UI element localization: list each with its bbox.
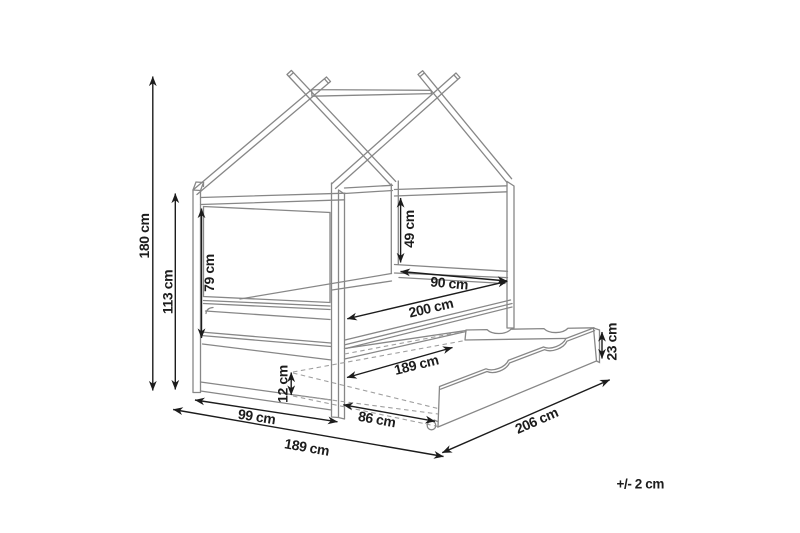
svg-text:86 cm: 86 cm <box>357 408 397 430</box>
svg-text:90 cm: 90 cm <box>430 273 469 292</box>
svg-text:49 cm: 49 cm <box>401 210 417 248</box>
svg-text:23 cm: 23 cm <box>604 323 620 361</box>
svg-text:189 cm: 189 cm <box>392 351 440 377</box>
svg-text:180 cm: 180 cm <box>136 213 152 258</box>
svg-text:113 cm: 113 cm <box>160 270 176 314</box>
svg-text:200 cm: 200 cm <box>407 295 455 321</box>
svg-text:79 cm: 79 cm <box>201 254 217 292</box>
svg-text:12 cm: 12 cm <box>275 365 291 403</box>
svg-text:206 cm: 206 cm <box>513 404 561 437</box>
svg-text:189 cm: 189 cm <box>283 435 330 459</box>
svg-text:+/- 2 cm: +/- 2 cm <box>617 477 665 492</box>
